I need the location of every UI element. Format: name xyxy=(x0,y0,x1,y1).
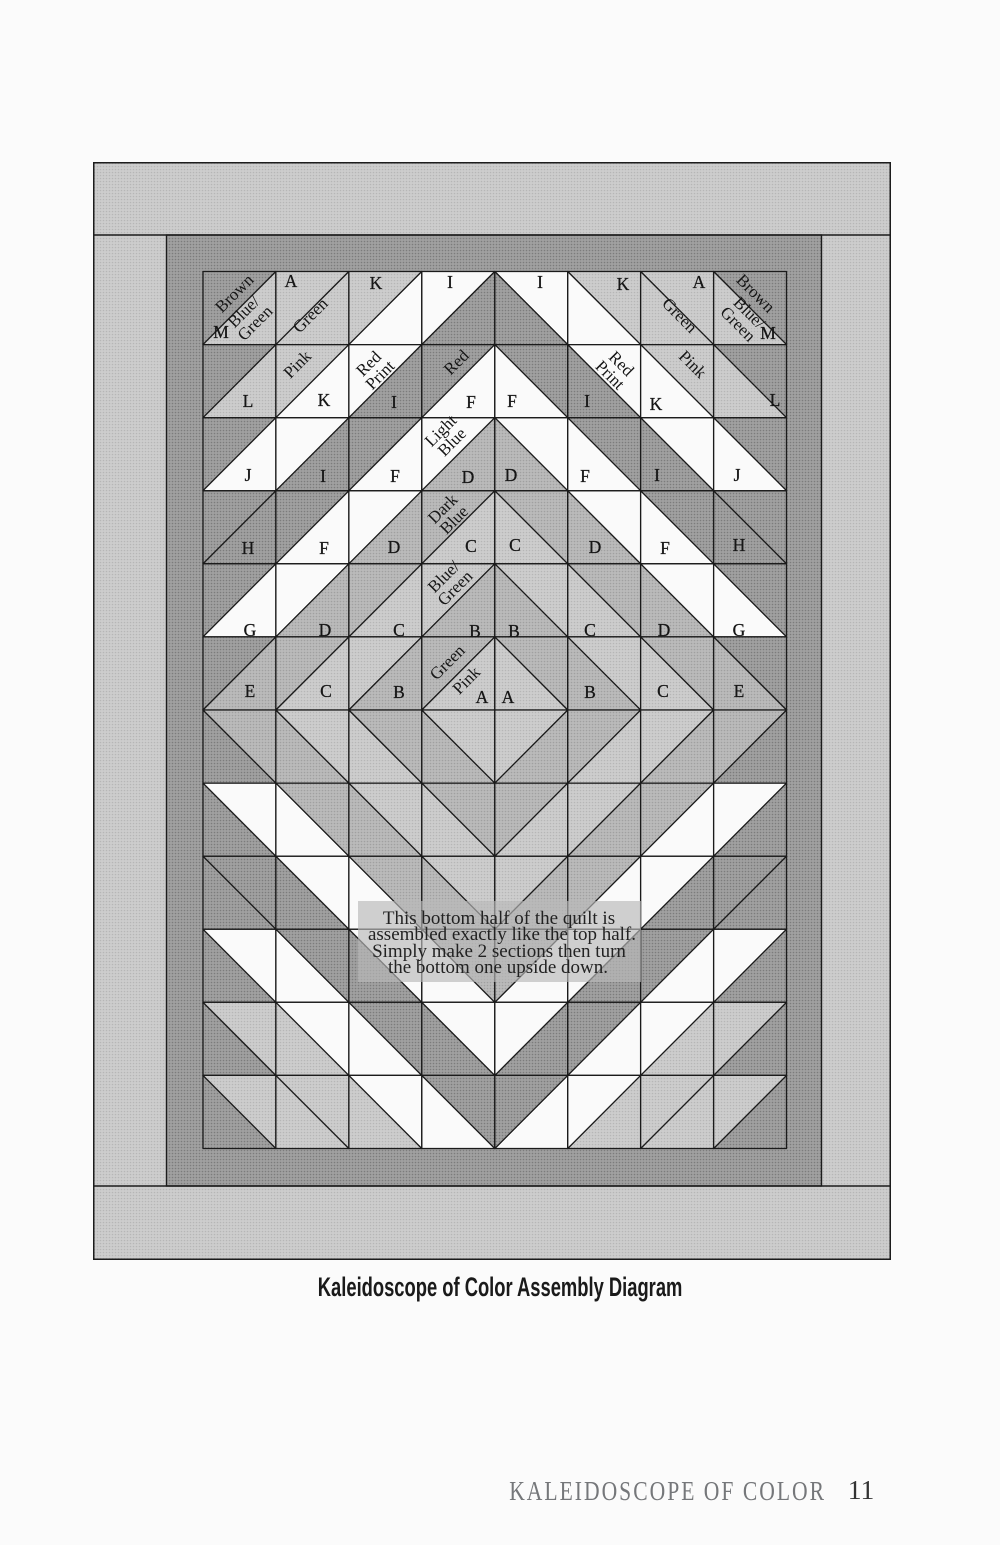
svg-text:F: F xyxy=(466,392,476,412)
svg-text:A: A xyxy=(285,271,298,291)
svg-text:A: A xyxy=(502,687,515,707)
svg-text:A: A xyxy=(476,687,489,707)
svg-text:D: D xyxy=(505,465,518,485)
svg-text:I: I xyxy=(447,272,453,292)
svg-text:C: C xyxy=(509,535,521,555)
svg-text:I: I xyxy=(537,272,543,292)
svg-text:A: A xyxy=(693,272,706,292)
svg-text:C: C xyxy=(584,620,596,640)
svg-text:G: G xyxy=(244,620,257,640)
svg-text:C: C xyxy=(320,681,332,701)
svg-text:F: F xyxy=(390,466,400,486)
svg-text:B: B xyxy=(584,682,596,702)
svg-text:F: F xyxy=(507,391,517,411)
svg-text:E: E xyxy=(245,681,256,701)
svg-text:H: H xyxy=(733,535,746,555)
svg-text:F: F xyxy=(319,538,329,558)
svg-text:D: D xyxy=(388,537,401,557)
svg-text:C: C xyxy=(465,536,477,556)
svg-text:D: D xyxy=(658,620,671,640)
svg-text:E: E xyxy=(734,681,745,701)
svg-text:K: K xyxy=(650,394,663,414)
svg-text:B: B xyxy=(393,682,405,702)
svg-text:K: K xyxy=(617,274,630,294)
svg-text:I: I xyxy=(584,391,590,411)
svg-text:L: L xyxy=(243,391,254,411)
svg-text:M: M xyxy=(760,323,776,343)
svg-text:L: L xyxy=(770,390,781,410)
svg-text:J: J xyxy=(734,465,741,485)
svg-text:J: J xyxy=(245,465,252,485)
svg-text:K: K xyxy=(370,273,383,293)
svg-text:I: I xyxy=(320,466,326,486)
svg-text:H: H xyxy=(242,538,255,558)
svg-text:C: C xyxy=(393,620,405,640)
svg-text:the bottom one upside down.: the bottom one upside down. xyxy=(388,957,608,978)
svg-text:D: D xyxy=(589,537,602,557)
svg-text:I: I xyxy=(391,392,397,412)
svg-text:K: K xyxy=(318,390,331,410)
svg-text:M: M xyxy=(213,322,229,342)
svg-text:F: F xyxy=(580,466,590,486)
svg-text:B: B xyxy=(469,621,481,641)
svg-text:I: I xyxy=(654,465,660,485)
svg-text:D: D xyxy=(462,467,475,487)
svg-text:B: B xyxy=(508,621,520,641)
svg-text:C: C xyxy=(657,681,669,701)
svg-text:G: G xyxy=(733,620,746,640)
svg-text:D: D xyxy=(319,620,332,640)
svg-text:F: F xyxy=(660,538,670,558)
